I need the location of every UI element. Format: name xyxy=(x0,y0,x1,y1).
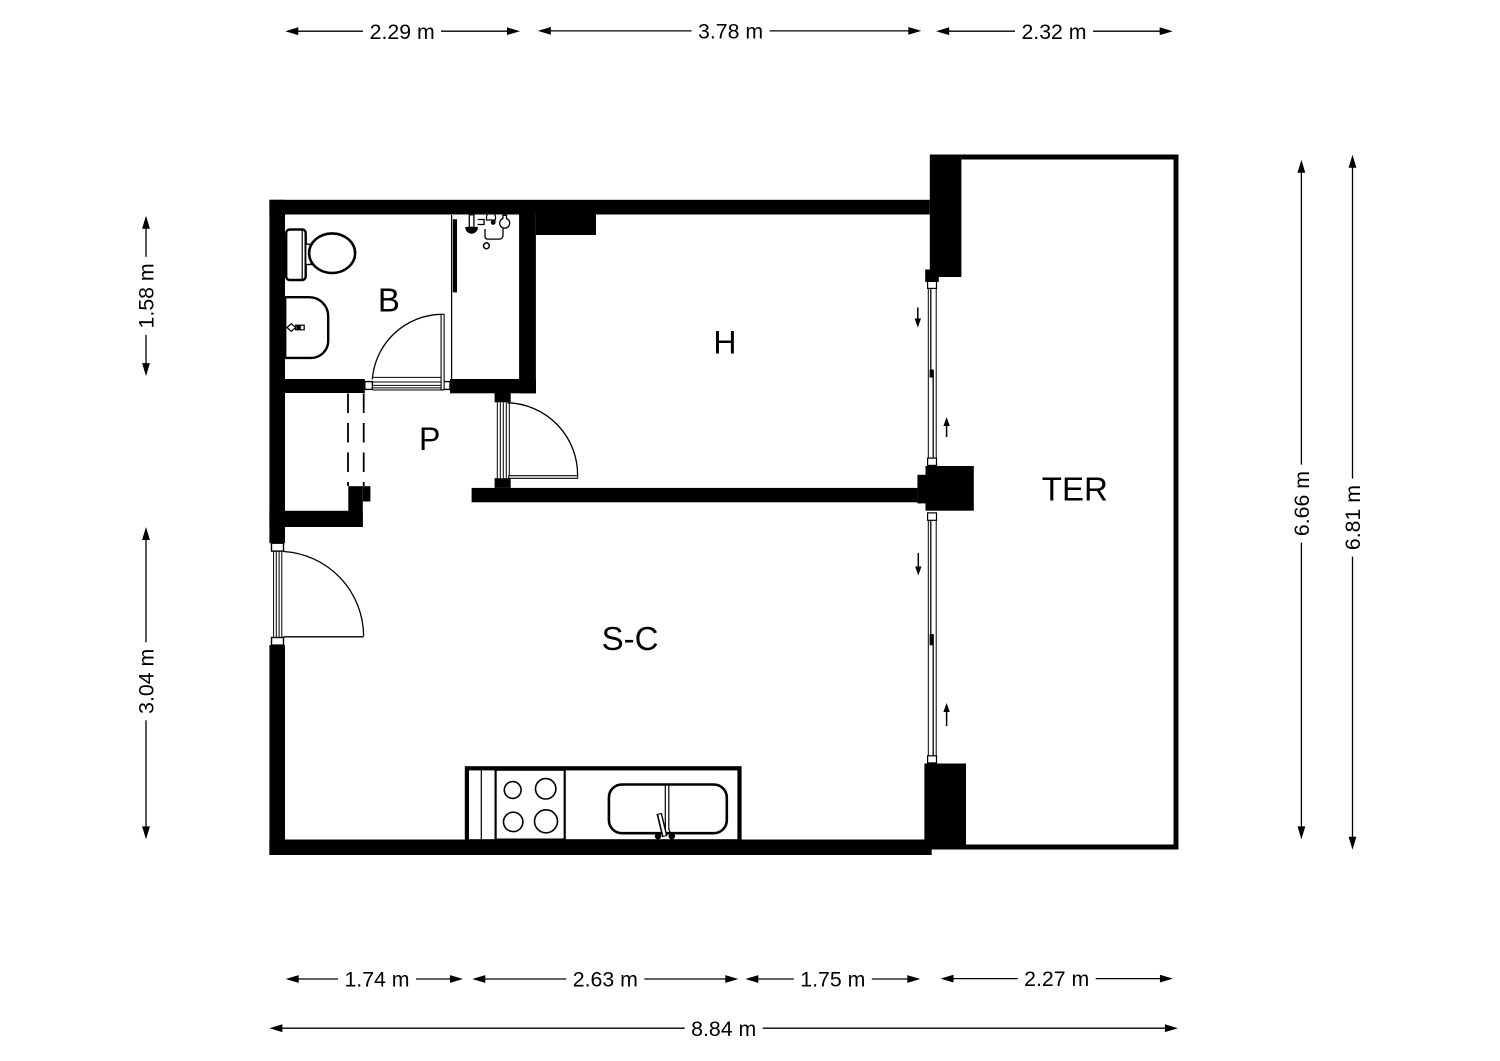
svg-text:H: H xyxy=(713,325,736,361)
svg-text:8.84 m: 8.84 m xyxy=(691,1017,756,1041)
svg-text:3.78 m: 3.78 m xyxy=(698,20,763,44)
svg-text:2.63 m: 2.63 m xyxy=(573,968,638,992)
svg-text:1.74 m: 1.74 m xyxy=(344,968,409,992)
svg-text:3.04 m: 3.04 m xyxy=(135,649,159,714)
svg-text:B: B xyxy=(378,282,400,319)
svg-text:P: P xyxy=(419,421,440,457)
svg-text:2.32 m: 2.32 m xyxy=(1021,20,1086,44)
svg-text:6.81 m: 6.81 m xyxy=(1341,485,1365,550)
svg-text:TER: TER xyxy=(1042,470,1108,507)
svg-text:2.29 m: 2.29 m xyxy=(370,20,435,44)
svg-text:1.75 m: 1.75 m xyxy=(800,968,865,992)
svg-text:2.27 m: 2.27 m xyxy=(1024,967,1089,991)
svg-text:1.58 m: 1.58 m xyxy=(135,263,159,328)
svg-text:S-C: S-C xyxy=(602,620,659,657)
svg-text:6.66 m: 6.66 m xyxy=(1290,471,1314,536)
